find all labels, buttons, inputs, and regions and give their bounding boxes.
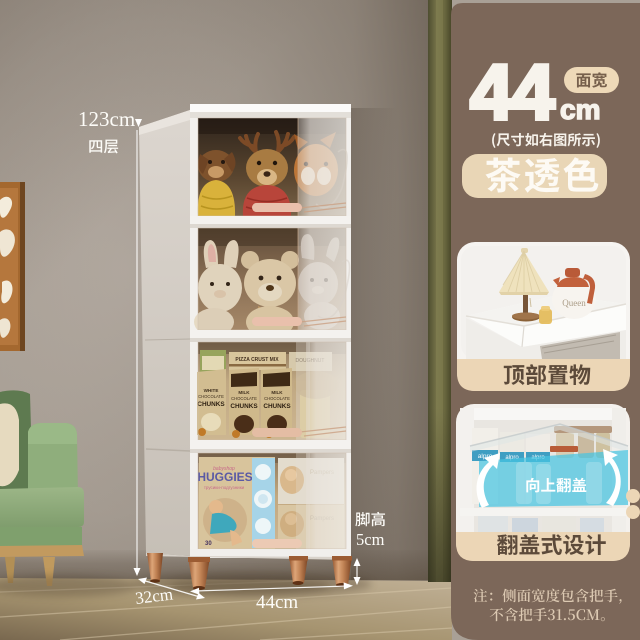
svg-text:5cm: 5cm [356,530,385,549]
svg-text:CHOCOLATE: CHOCOLATE [231,396,257,401]
svg-text:трусики-подгузники: трусики-подгузники [204,485,245,490]
svg-text:PIZZA CRUST MIX: PIZZA CRUST MIX [235,357,279,363]
svg-text:CHUNKS: CHUNKS [263,403,291,410]
svg-text:CHOCOLATE: CHOCOLATE [198,394,224,399]
svg-text:HUGGIES: HUGGIES [197,470,252,484]
svg-text:MILK: MILK [238,390,250,395]
svg-text:CHOCOLATE: CHOCOLATE [264,396,290,401]
svg-text:CHUNKS: CHUNKS [197,401,225,408]
svg-text:CHUNKS: CHUNKS [230,403,258,410]
svg-text:Queen: Queen [562,298,586,308]
svg-text:MILK: MILK [271,390,283,395]
svg-text:WHITE: WHITE [204,388,219,393]
svg-text:123cm: 123cm [78,107,135,131]
svg-text:cm: cm [560,94,600,125]
svg-text:44cm: 44cm [256,592,298,613]
svg-text:30: 30 [205,541,212,547]
svg-text:44: 44 [470,48,554,136]
